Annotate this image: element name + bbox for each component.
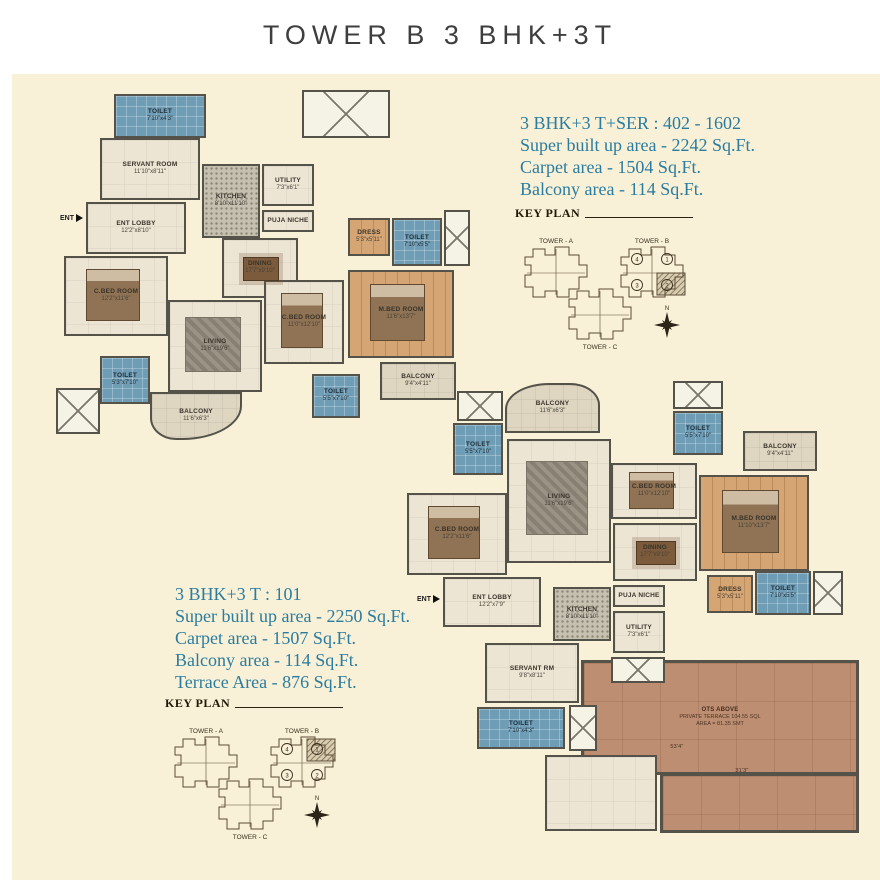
room-dimension: 12'2"x7'9" [472, 602, 511, 610]
room-dining: DINING17'7"x9'10" [613, 523, 697, 581]
room-living: LIVING11'6"x19'6" [507, 439, 611, 563]
room-dimension: 5'3"x5'11" [717, 594, 743, 602]
room-dimension: 7'10"x5'5" [404, 242, 430, 250]
room-c-bed-room: C.BED ROOM11'0"x12'10" [264, 280, 344, 364]
room-terrace [660, 773, 859, 833]
svg-text:4: 4 [635, 258, 639, 264]
svg-text:4: 4 [285, 748, 289, 754]
room-servant-rm: SERVANT RM9'8"x8'11" [485, 643, 579, 703]
room-dimension: 8'10"x11'10" [215, 201, 247, 209]
room-dimension: 5'5"x7'10" [323, 396, 349, 404]
room-dress: DRESS5'3"x5'11" [707, 575, 753, 613]
room-dimension: 17'7"x9'10" [245, 268, 275, 276]
room-dress: DRESS5'3"x5'11" [348, 218, 390, 256]
room-c-bed-room: C.BED ROOM11'0"x12'10" [611, 463, 697, 519]
room-shaft [611, 657, 665, 683]
room-shaft [673, 381, 723, 409]
room-name: PUJA NICHE [267, 217, 308, 225]
room-name: PUJA NICHE [618, 592, 659, 600]
key-plan-map: TOWER - A TOWER - B TOWER - C 4 1 3 2 N [515, 223, 693, 351]
room-dimension: 11'10"x8'11" [123, 169, 178, 177]
room-name: SERVANT RM [510, 665, 554, 673]
room-name: C.BED ROOM [435, 526, 479, 534]
room-dimension: 7'10"x5'5" [770, 593, 796, 601]
svg-text:3: 3 [635, 284, 639, 290]
room-name: BALCONY [763, 443, 797, 451]
room-dimension: 9'4"x4'11" [401, 381, 435, 389]
room-name: KITCHEN [215, 193, 247, 201]
room-toilet: TOILET7'10"x4'3" [477, 707, 565, 749]
room-dimension: 12'2"x11'6" [435, 534, 479, 542]
unit-number-4: 4 [282, 744, 293, 755]
unit-number-2: 2 [312, 770, 323, 781]
room-name: TOILET [147, 108, 173, 116]
room-toilet: TOILET7'10"x5'5" [755, 571, 811, 615]
room-name: LIVING [200, 338, 229, 346]
room-name: DINING [245, 260, 275, 268]
room-ent-lobby: ENT LOBBY12'2"x8'10" [86, 202, 186, 254]
room-dimension: 11'0"x12'10" [282, 322, 326, 330]
room-name: TOILET [112, 372, 138, 380]
room-name: 31'3" [735, 768, 748, 775]
key-plan-title: KEY PLAN [165, 696, 230, 711]
room-name: SERVANT ROOM [123, 161, 178, 169]
room-name: 53'4" [670, 744, 683, 751]
room-name: OTS ABOVE [679, 707, 760, 715]
room-c-bed-room: C.BED ROOM12'2"x11'6" [64, 256, 168, 336]
room-balcony: BALCONY9'4"x4'11" [743, 431, 817, 471]
room-name: BALCONY [401, 373, 435, 381]
room-dimension: 8'10"x11'10" [566, 614, 598, 622]
tower-c-divisions [571, 291, 629, 337]
room-dimension: 7'10"x4'3" [147, 116, 173, 124]
room-name: DRESS [717, 586, 743, 594]
room-m-bed-room: M.BED ROOM11'6"x13'7" [348, 270, 454, 358]
room-dimension: 5'3"x7'10" [112, 380, 138, 388]
room-dimension: 11'6"x6'3" [179, 416, 213, 424]
unit-info-top: 3 BHK+3 T+SER : 402 - 1602 Super built u… [520, 112, 860, 200]
room-name: TOILET [323, 388, 349, 396]
room-dimension: 11'6"x6'3" [536, 408, 570, 416]
room-floor [545, 755, 657, 831]
room-utility: UTILITY7'3"x6'1" [262, 164, 314, 206]
unit-top-heading: 3 BHK+3 T+SER : 402 - 1602 [520, 112, 860, 134]
room-shaft [569, 705, 597, 751]
key-plan-rule [235, 707, 343, 708]
room-dimension: 17'7"x9'10" [640, 552, 670, 560]
room-shaft [56, 388, 100, 434]
svg-text:1: 1 [665, 258, 669, 264]
room-dimension: 7'3"x6'1" [626, 632, 652, 640]
tower-a-divisions [177, 739, 235, 785]
tower-a-label: TOWER - A [189, 728, 223, 735]
room-dimension: PRIVATE TERRACE 104.55 SQL [679, 714, 760, 721]
entrance-arrow: ENT [417, 595, 440, 603]
room-toilet: TOILET5'3"x7'10" [100, 356, 150, 404]
room-balcony: BALCONY11'6"x6'3" [505, 383, 600, 433]
room-name: DINING [640, 544, 670, 552]
unit-number-3: 3 [282, 770, 293, 781]
room-utility: UTILITY7'3"x6'1" [613, 611, 665, 653]
room-dimension: 11'0"x12'10" [632, 491, 676, 499]
room-name: TOILET [770, 585, 796, 593]
room-name: C.BED ROOM [94, 288, 138, 296]
room-shaft [444, 210, 470, 266]
room-balcony: BALCONY11'6"x6'3" [150, 392, 242, 440]
room-dimension: 11'6"x13'7" [379, 314, 424, 322]
key-plan-header: KEY PLAN [165, 696, 343, 711]
unit-bottom-line: Carpet area - 1507 Sq.Ft. [175, 627, 475, 649]
room-toilet: TOILET7'10"x5'5" [392, 218, 442, 266]
room-toilet: TOILET5'5"x7'10" [312, 374, 360, 418]
svg-text:3: 3 [285, 774, 289, 780]
unit-number-3: 3 [632, 280, 643, 291]
unit-bottom-line: Super built up area - 2250 Sq.Ft. [175, 605, 475, 627]
room-name: ENT LOBBY [116, 220, 155, 228]
tower-c-label: TOWER - C [583, 344, 618, 351]
room-dimension: 11'6"x19'6" [200, 346, 229, 354]
room-m-bed-room: M.BED ROOM11'10"x13'7" [699, 475, 809, 571]
key-plan-map: TOWER - A TOWER - B TOWER - C 4 1 3 2 N [165, 713, 343, 841]
room-dimension: 11'10"x13'7" [732, 523, 777, 531]
room-name: C.BED ROOM [282, 314, 326, 322]
room-dimension: 12'2"x8'10" [116, 228, 155, 236]
room-kitchen: KITCHEN8'10"x11'10" [553, 587, 611, 641]
tower-b-label: TOWER - B [285, 728, 319, 735]
room-c-bed-room: C.BED ROOM12'2"x11'6" [407, 493, 507, 575]
compass-icon: N [304, 796, 330, 828]
floor-plan-lower: OTS ABOVEPRIVATE TERRACE 104.55 SQLAREA … [405, 375, 865, 837]
tower-a-divisions [527, 249, 585, 295]
unit-top-line: Carpet area - 1504 Sq.Ft. [520, 156, 860, 178]
entrance-arrow: ENT [60, 214, 83, 222]
room-dimension: 7'10"x4'3" [508, 728, 534, 736]
key-plan-upper: KEY PLAN TOWER - A TOWER - B TOWER - C 4… [515, 206, 693, 351]
svg-text:N: N [315, 796, 319, 802]
room-name: LIVING [544, 493, 573, 501]
room-dimension: 9'8"x8'11" [510, 673, 554, 681]
room-dimension: 5'5"x7'10" [685, 433, 711, 441]
room-dimension: 5'5"x7'10" [465, 449, 491, 457]
room-puja-niche: PUJA NICHE [613, 585, 665, 607]
room-shaft [457, 391, 503, 421]
tower-c-divisions [221, 781, 279, 827]
room-name: C.BED ROOM [632, 483, 676, 491]
room-name: M.BED ROOM [379, 306, 424, 314]
room-kitchen: KITCHEN8'10"x11'10" [202, 164, 260, 238]
room-servant-room: SERVANT ROOM11'10"x8'11" [100, 138, 200, 200]
unit-bottom-line: Terrace Area - 876 Sq.Ft. [175, 671, 475, 693]
room-name: UTILITY [275, 177, 301, 185]
room-name: BALCONY [536, 400, 570, 408]
room-name: TOILET [508, 720, 534, 728]
svg-text:N: N [665, 306, 669, 312]
room-dimension: 5'3"x5'11" [356, 237, 382, 245]
room-living: LIVING11'6"x19'6" [168, 300, 262, 392]
tower-b-label: TOWER - B [635, 238, 669, 245]
room-dimension: AREA = 81.35 SMT [679, 721, 760, 728]
unit-top-line: Super built up area - 2242 Sq.Ft. [520, 134, 860, 156]
room-shaft [302, 90, 390, 138]
room-53-4-: 53'4" [655, 741, 699, 753]
room-name: TOILET [685, 425, 711, 433]
room-name: ENT LOBBY [472, 594, 511, 602]
unit-number-4: 4 [632, 254, 643, 265]
key-plan-header: KEY PLAN [515, 206, 693, 221]
compass-icon: N [654, 306, 680, 338]
room-name: UTILITY [626, 624, 652, 632]
room-dimension: 12'2"x11'6" [94, 296, 138, 304]
room-name: DRESS [356, 229, 382, 237]
room-name: TOILET [465, 441, 491, 449]
page-title: TOWER B 3 BHK+3T [0, 20, 880, 51]
room-name: BALCONY [179, 408, 213, 416]
key-plan-title: KEY PLAN [515, 206, 580, 221]
room-toilet: TOILET5'5"x7'10" [673, 411, 723, 455]
room-name: KITCHEN [566, 606, 598, 614]
room-dimension: 7'3"x6'1" [275, 185, 301, 193]
room-puja-niche: PUJA NICHE [262, 210, 314, 232]
tower-c-label: TOWER - C [233, 834, 268, 841]
room-dimension: 11'6"x19'6" [544, 501, 573, 509]
key-plan-lower: KEY PLAN TOWER - A TOWER - B TOWER - C 4… [165, 696, 343, 841]
room-toilet: TOILET7'10"x4'3" [114, 94, 206, 138]
room-31-3-: 31'3" [720, 765, 764, 777]
unit-top-line: Balcony area - 114 Sq.Ft. [520, 178, 860, 200]
room-toilet: TOILET5'5"x7'10" [453, 423, 503, 475]
room-name: TOILET [404, 234, 430, 242]
tower-a-label: TOWER - A [539, 238, 573, 245]
room-dimension: 9'4"x4'11" [763, 451, 797, 459]
room-shaft [813, 571, 843, 615]
unit-bottom-line: Balcony area - 114 Sq.Ft. [175, 649, 475, 671]
key-plan-rule [585, 217, 693, 218]
room-name: M.BED ROOM [732, 515, 777, 523]
